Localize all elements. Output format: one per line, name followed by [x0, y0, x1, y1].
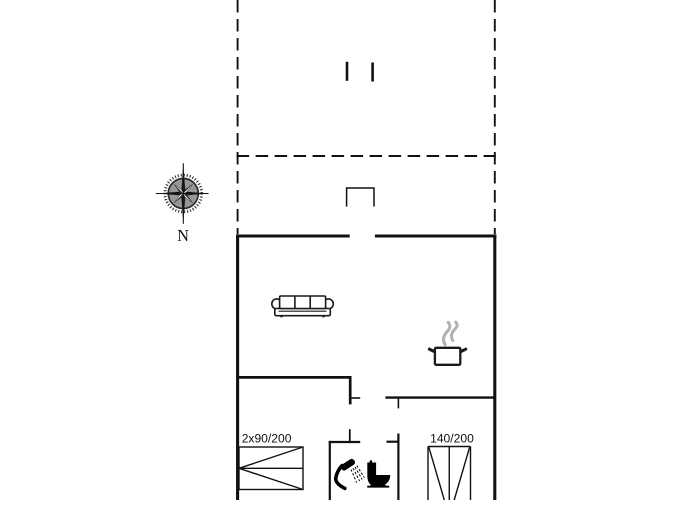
svg-text:140/200: 140/200 — [430, 431, 474, 445]
svg-text:2x90/200: 2x90/200 — [242, 431, 292, 445]
svg-text:N: N — [177, 226, 189, 245]
